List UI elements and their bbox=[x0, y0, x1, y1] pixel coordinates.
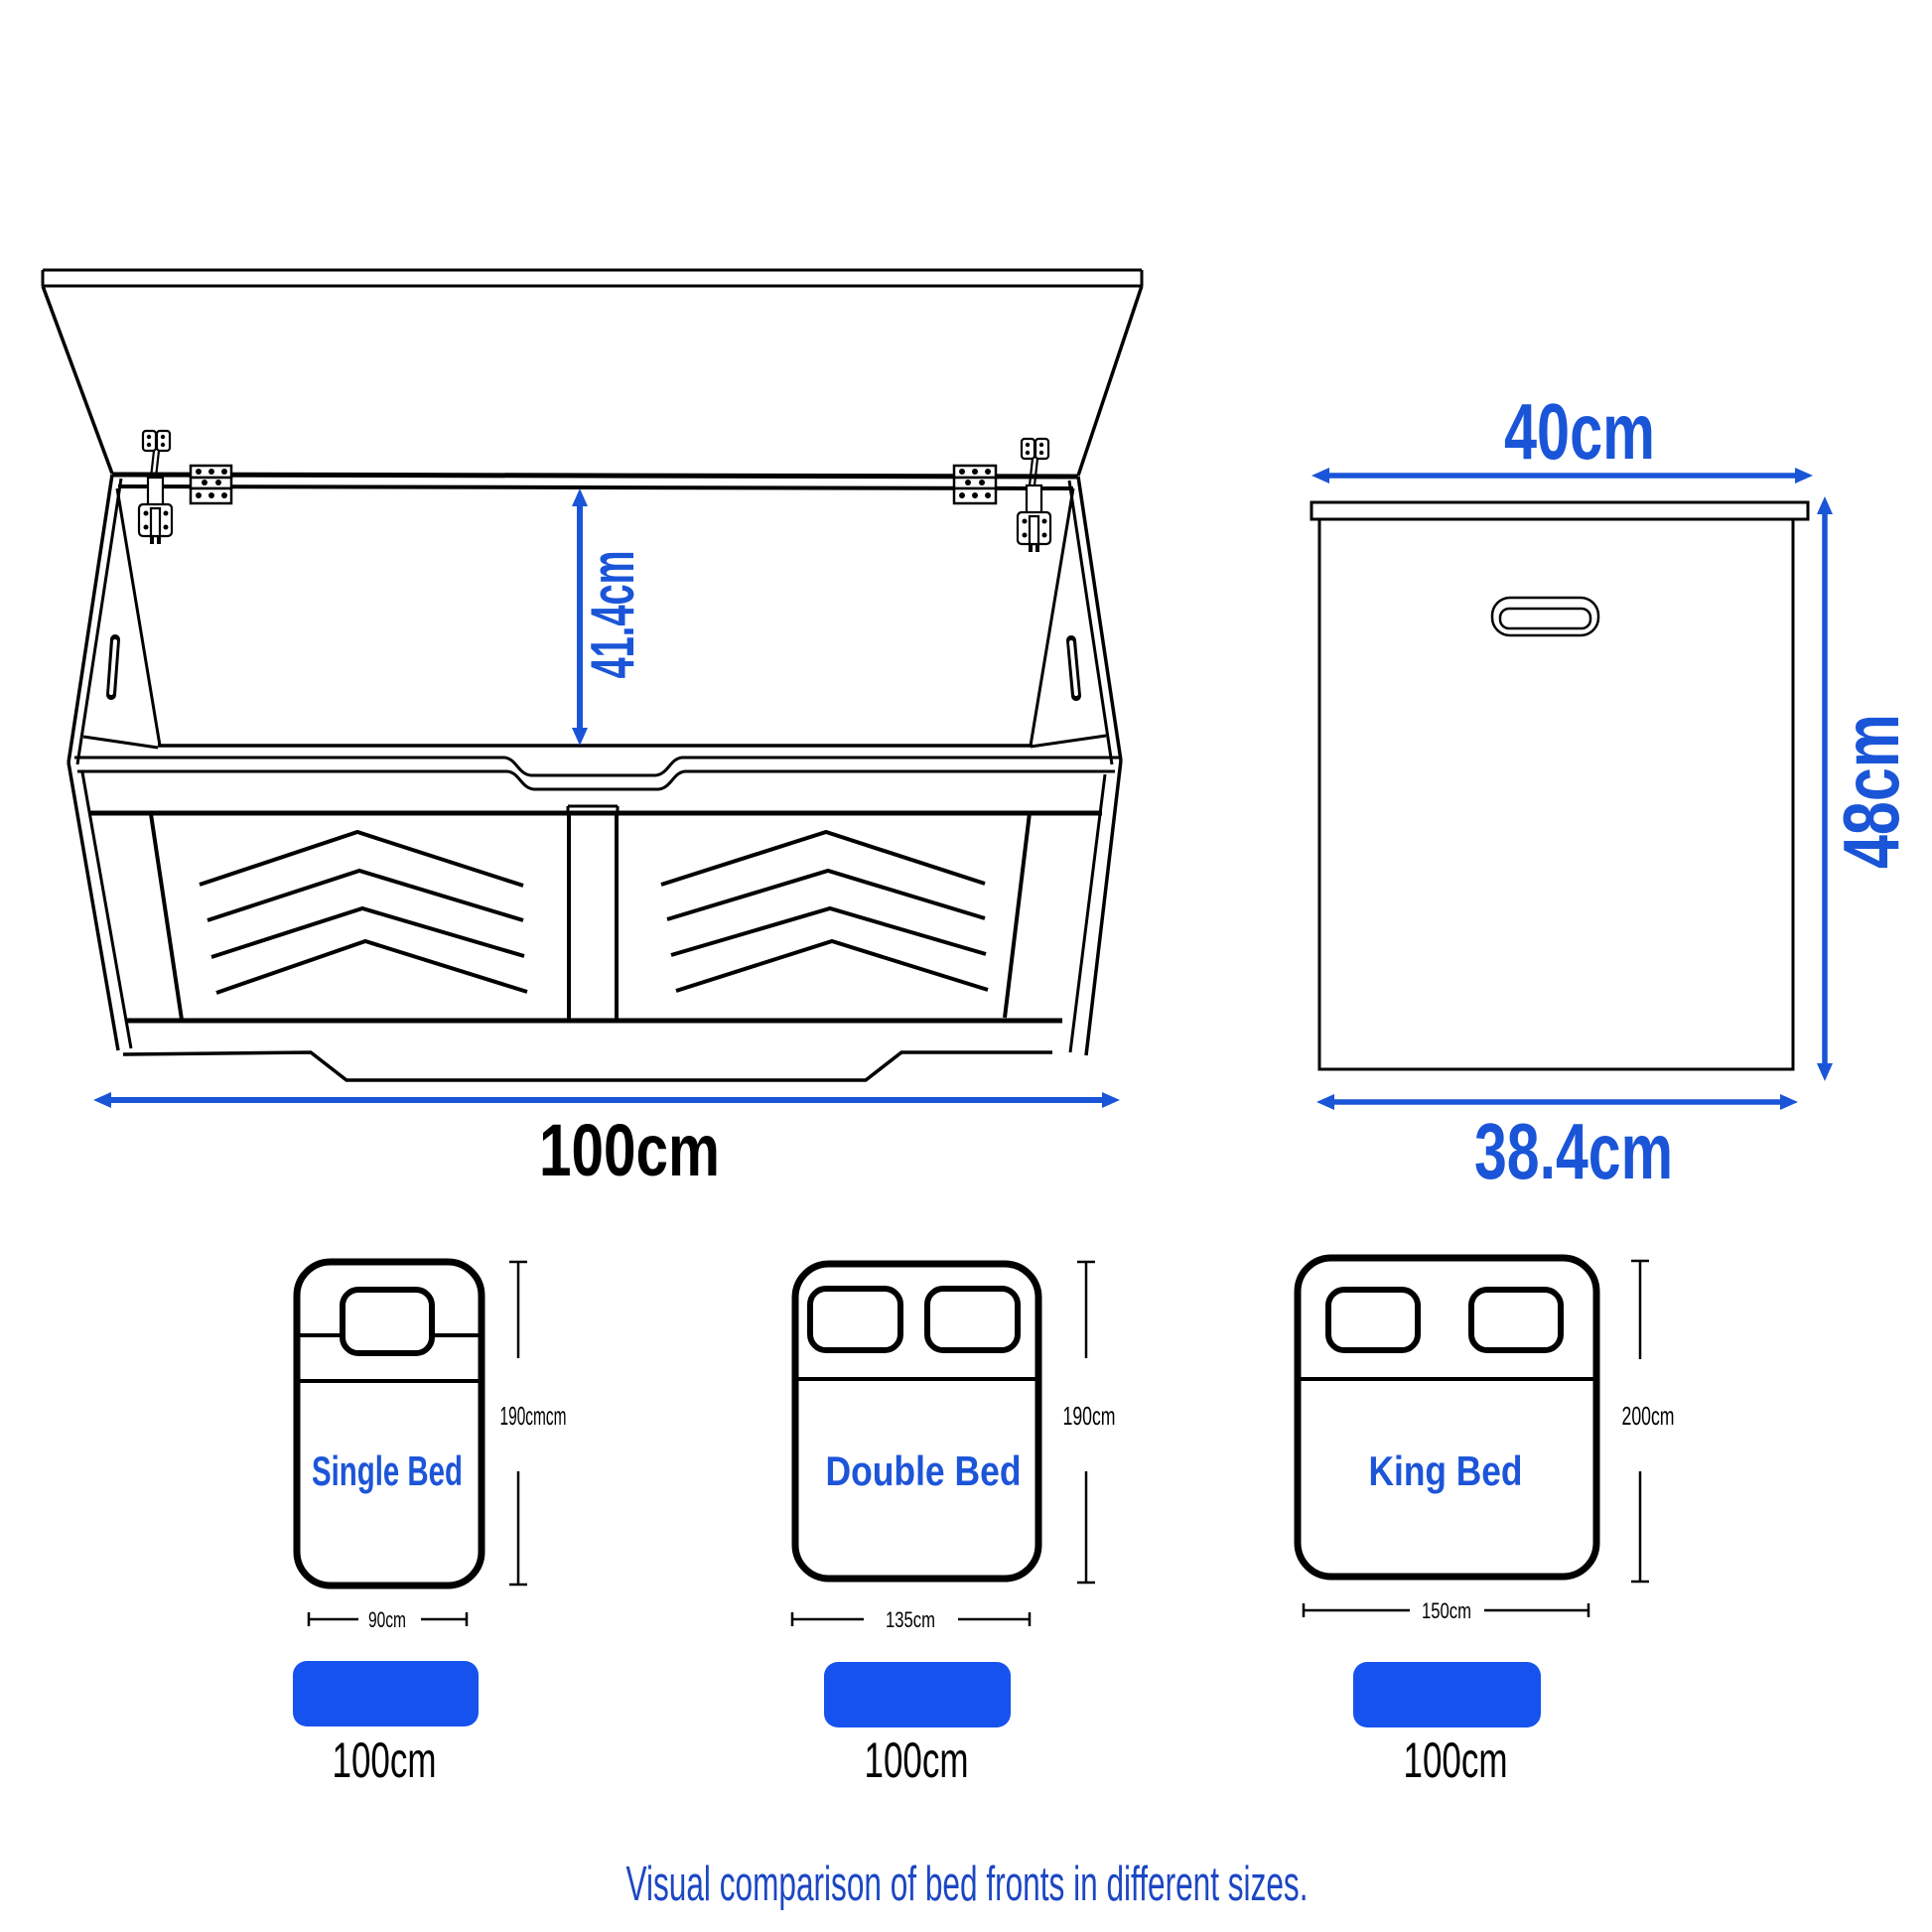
svg-text:135cm: 135cm bbox=[886, 1607, 935, 1632]
svg-text:150cm: 150cm bbox=[1422, 1598, 1471, 1623]
svg-text:200cm: 200cm bbox=[1622, 1401, 1675, 1431]
svg-text:Double Bed: Double Bed bbox=[826, 1448, 1022, 1494]
svg-text:48cm: 48cm bbox=[1827, 714, 1915, 869]
svg-text:190cm: 190cm bbox=[1063, 1401, 1116, 1431]
svg-text:100cm: 100cm bbox=[333, 1732, 437, 1788]
svg-text:100cm: 100cm bbox=[865, 1732, 969, 1788]
svg-text:90cm: 90cm bbox=[368, 1607, 406, 1632]
svg-text:40cm: 40cm bbox=[1504, 387, 1655, 476]
svg-text:38.4cm: 38.4cm bbox=[1474, 1107, 1673, 1195]
svg-text:King Bed: King Bed bbox=[1369, 1448, 1523, 1494]
svg-text:100cm: 100cm bbox=[1404, 1732, 1508, 1788]
svg-text:Single Bed: Single Bed bbox=[312, 1448, 463, 1494]
svg-text:190cmcm: 190cmcm bbox=[500, 1401, 567, 1431]
svg-text:100cm: 100cm bbox=[539, 1109, 720, 1191]
svg-text:Visual comparison of bed front: Visual comparison of bed fronts in diffe… bbox=[626, 1858, 1309, 1911]
svg-text:41.4cm: 41.4cm bbox=[579, 551, 647, 679]
